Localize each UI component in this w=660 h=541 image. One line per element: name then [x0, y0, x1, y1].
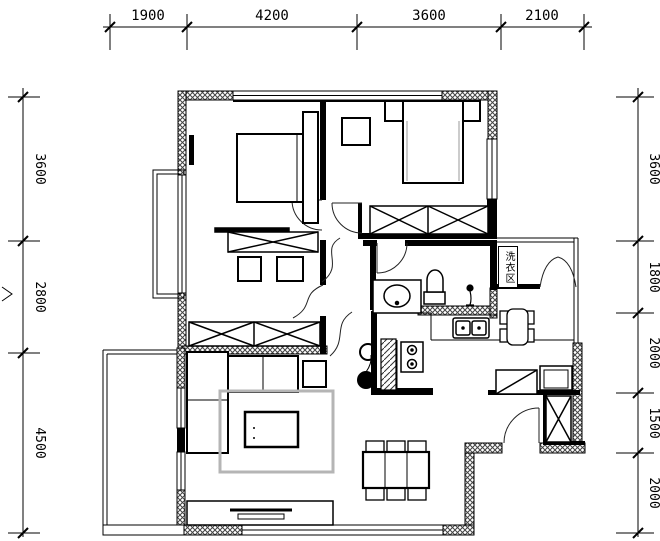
wardrobe-bedroom2: [370, 206, 488, 237]
bed-bedroom2: [385, 101, 480, 183]
toilet: [424, 270, 445, 304]
bedroom2-door: [332, 203, 362, 233]
arrow-fragment: [2, 287, 12, 301]
entry-door: [504, 408, 539, 443]
dim-top-1900: 1900: [131, 8, 165, 24]
dim-top-2100: 2100: [525, 8, 559, 24]
dim-top-4200: 4200: [255, 8, 289, 24]
floor-plan-canvas: 1900 4200 3600 2100 3600 2800 4500 3600 …: [0, 0, 660, 541]
dim-right-2000a: 2000: [646, 337, 660, 368]
balcony-door: [540, 257, 576, 287]
dim-right-2000b: 2000: [646, 477, 660, 508]
bed-bedroom1: [237, 112, 318, 223]
stove: [401, 342, 423, 372]
tv-cabinet: [187, 501, 333, 525]
floor-plan-drawing: 1900 4200 3600 2100 3600 2800 4500 3600 …: [0, 0, 660, 541]
furniture: [187, 101, 574, 525]
dim-left-2800: 2800: [32, 281, 47, 312]
coffee-table: [245, 412, 298, 447]
mirror-bedroom1: [190, 136, 193, 164]
dimension-right: 3600 1800 2000 1500 2000: [616, 88, 660, 538]
entry-cabinet: [540, 366, 572, 390]
dim-top-3600: 3600: [412, 8, 446, 24]
breakfast-table: [500, 309, 534, 345]
dining-set: [363, 441, 429, 500]
laundry-area-label: 洗衣区: [498, 246, 518, 288]
dimension-left: 3600 2800 4500: [2, 88, 47, 538]
nightstand-bedroom2: [342, 118, 370, 145]
entry-wardrobe: [546, 396, 571, 442]
kitchen-sink: [453, 318, 489, 338]
flue-column: [381, 339, 396, 390]
stool-2: [277, 257, 303, 281]
bathroom-door: [377, 243, 407, 273]
dressing-table-bedroom1: [215, 228, 318, 252]
bathroom-vanity: [373, 280, 421, 313]
dimension-top: 1900 4200 3600 2100: [103, 8, 592, 50]
dim-left-4500: 4500: [32, 427, 47, 458]
dim-right-1800: 1800: [646, 261, 660, 292]
dim-right-1500: 1500: [646, 407, 660, 438]
shower-head: [466, 285, 474, 305]
dim-right-3600: 3600: [646, 153, 660, 184]
stool-1: [238, 257, 261, 281]
side-table: [303, 361, 326, 387]
wardrobe-bedroom1: [189, 322, 320, 346]
dim-left-3600: 3600: [32, 153, 47, 184]
shoe-cabinet: [496, 370, 537, 394]
